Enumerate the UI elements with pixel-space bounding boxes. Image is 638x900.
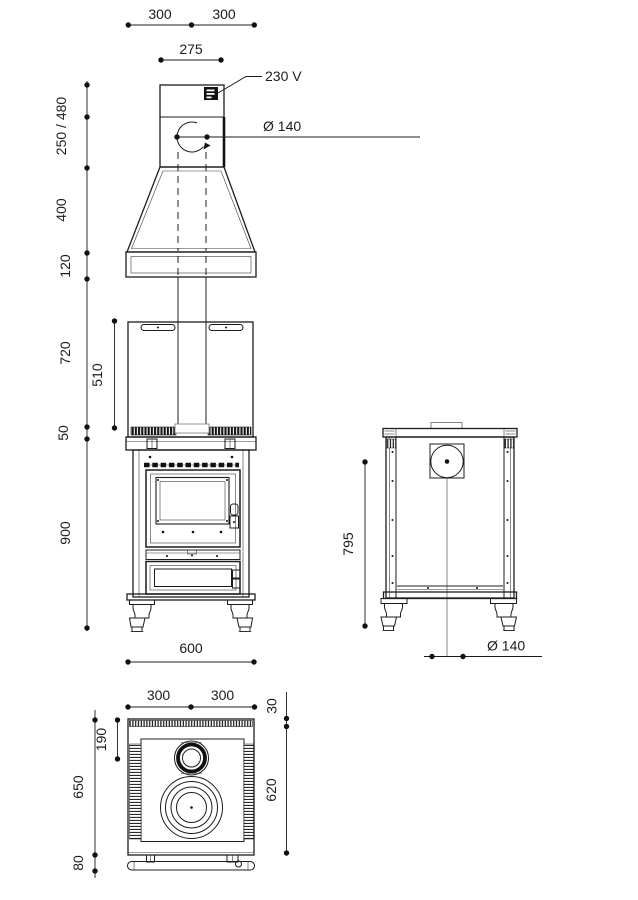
top-dim-left-300-label: 300 xyxy=(147,687,171,703)
front-dim-panel-inner: 510 xyxy=(89,318,117,430)
top-dim-30-label: 30 xyxy=(264,698,280,714)
front-leg-right xyxy=(228,600,253,632)
front-dim-275-label: 275 xyxy=(179,41,203,57)
fire-door xyxy=(146,470,240,547)
voltage-label: 230 V xyxy=(265,68,302,84)
top-body xyxy=(128,719,254,855)
top-dim-chain-right: 30 620 xyxy=(263,692,289,856)
stove-top-band xyxy=(126,437,256,450)
vent-strip-left xyxy=(131,427,176,435)
top-dim-620-label: 620 xyxy=(263,778,279,802)
front-dim-connector-width: 275 xyxy=(158,41,223,63)
top-dim-190-label: 190 xyxy=(93,728,109,752)
front-dim-top-left-label: 300 xyxy=(148,6,172,22)
side-flue-diameter-label: Ø 140 xyxy=(487,638,525,654)
top-flue-collar xyxy=(175,741,209,775)
vent-strip-right xyxy=(208,427,251,435)
side-leg-right xyxy=(491,599,517,631)
front-dim-telescope-label: 250 / 480 xyxy=(53,97,69,156)
front-dim-chain-left: 250 / 480 400 120 720 50 900 xyxy=(53,81,90,631)
front-dim-body-height-label: 900 xyxy=(57,521,73,545)
side-top-band xyxy=(383,429,517,438)
front-dim-panel-label: 720 xyxy=(57,341,73,365)
front-dim-top-right-label: 300 xyxy=(212,6,236,22)
stove-dimension-drawing: 300 300 275 230 V Ø 1 xyxy=(0,0,638,900)
side-view: 795 Ø 140 xyxy=(340,423,542,660)
pipe-base-plate xyxy=(175,424,209,433)
side-legs xyxy=(381,599,517,631)
top-vent-strip-right xyxy=(244,744,254,839)
front-legs xyxy=(130,600,253,632)
trim-band xyxy=(146,550,240,560)
top-handle-rail xyxy=(128,855,255,870)
top-view: 300 300 xyxy=(70,687,289,878)
ash-drawer xyxy=(146,562,240,595)
door-glass xyxy=(156,478,229,525)
front-dim-body-width: 600 xyxy=(125,640,256,665)
front-dim-510-label: 510 xyxy=(89,363,105,387)
technical-drawing-page: 300 300 275 230 V Ø 1 xyxy=(0,0,638,900)
top-dim-widths: 300 300 xyxy=(125,687,257,710)
front-dim-hood-band-label: 120 xyxy=(57,254,73,278)
top-dim-right-300-label: 300 xyxy=(211,687,235,703)
side-body xyxy=(384,437,517,657)
side-dim-795-label: 795 xyxy=(340,532,356,556)
front-dim-top-band-label: 50 xyxy=(55,425,71,441)
flue-connector-box: 230 V Ø 140 xyxy=(160,68,420,167)
side-dim-height: 795 xyxy=(340,459,368,628)
side-dim-flue: Ø 140 xyxy=(424,638,542,660)
side-leg-left xyxy=(381,599,407,631)
front-flue-diameter-label: Ø 140 xyxy=(263,118,301,134)
front-dim-hood-label: 400 xyxy=(53,198,69,222)
top-rear-strip xyxy=(130,721,253,727)
front-dim-top-widths: 300 300 xyxy=(126,6,257,28)
top-dim-80-label: 80 xyxy=(70,855,86,871)
front-dim-600-label: 600 xyxy=(179,640,203,656)
top-cooking-rings xyxy=(161,777,223,839)
flue-pipe xyxy=(178,152,206,424)
side-top-tab xyxy=(431,423,462,429)
top-vent-strip-left xyxy=(130,744,142,839)
side-flue-outlet xyxy=(430,444,464,478)
top-dim-flue-offset: 190 xyxy=(93,717,120,761)
back-panel xyxy=(128,322,253,437)
stove-body xyxy=(127,450,255,600)
front-leg-left xyxy=(130,600,155,632)
top-dim-650-label: 650 xyxy=(70,775,86,799)
hood xyxy=(126,167,256,277)
